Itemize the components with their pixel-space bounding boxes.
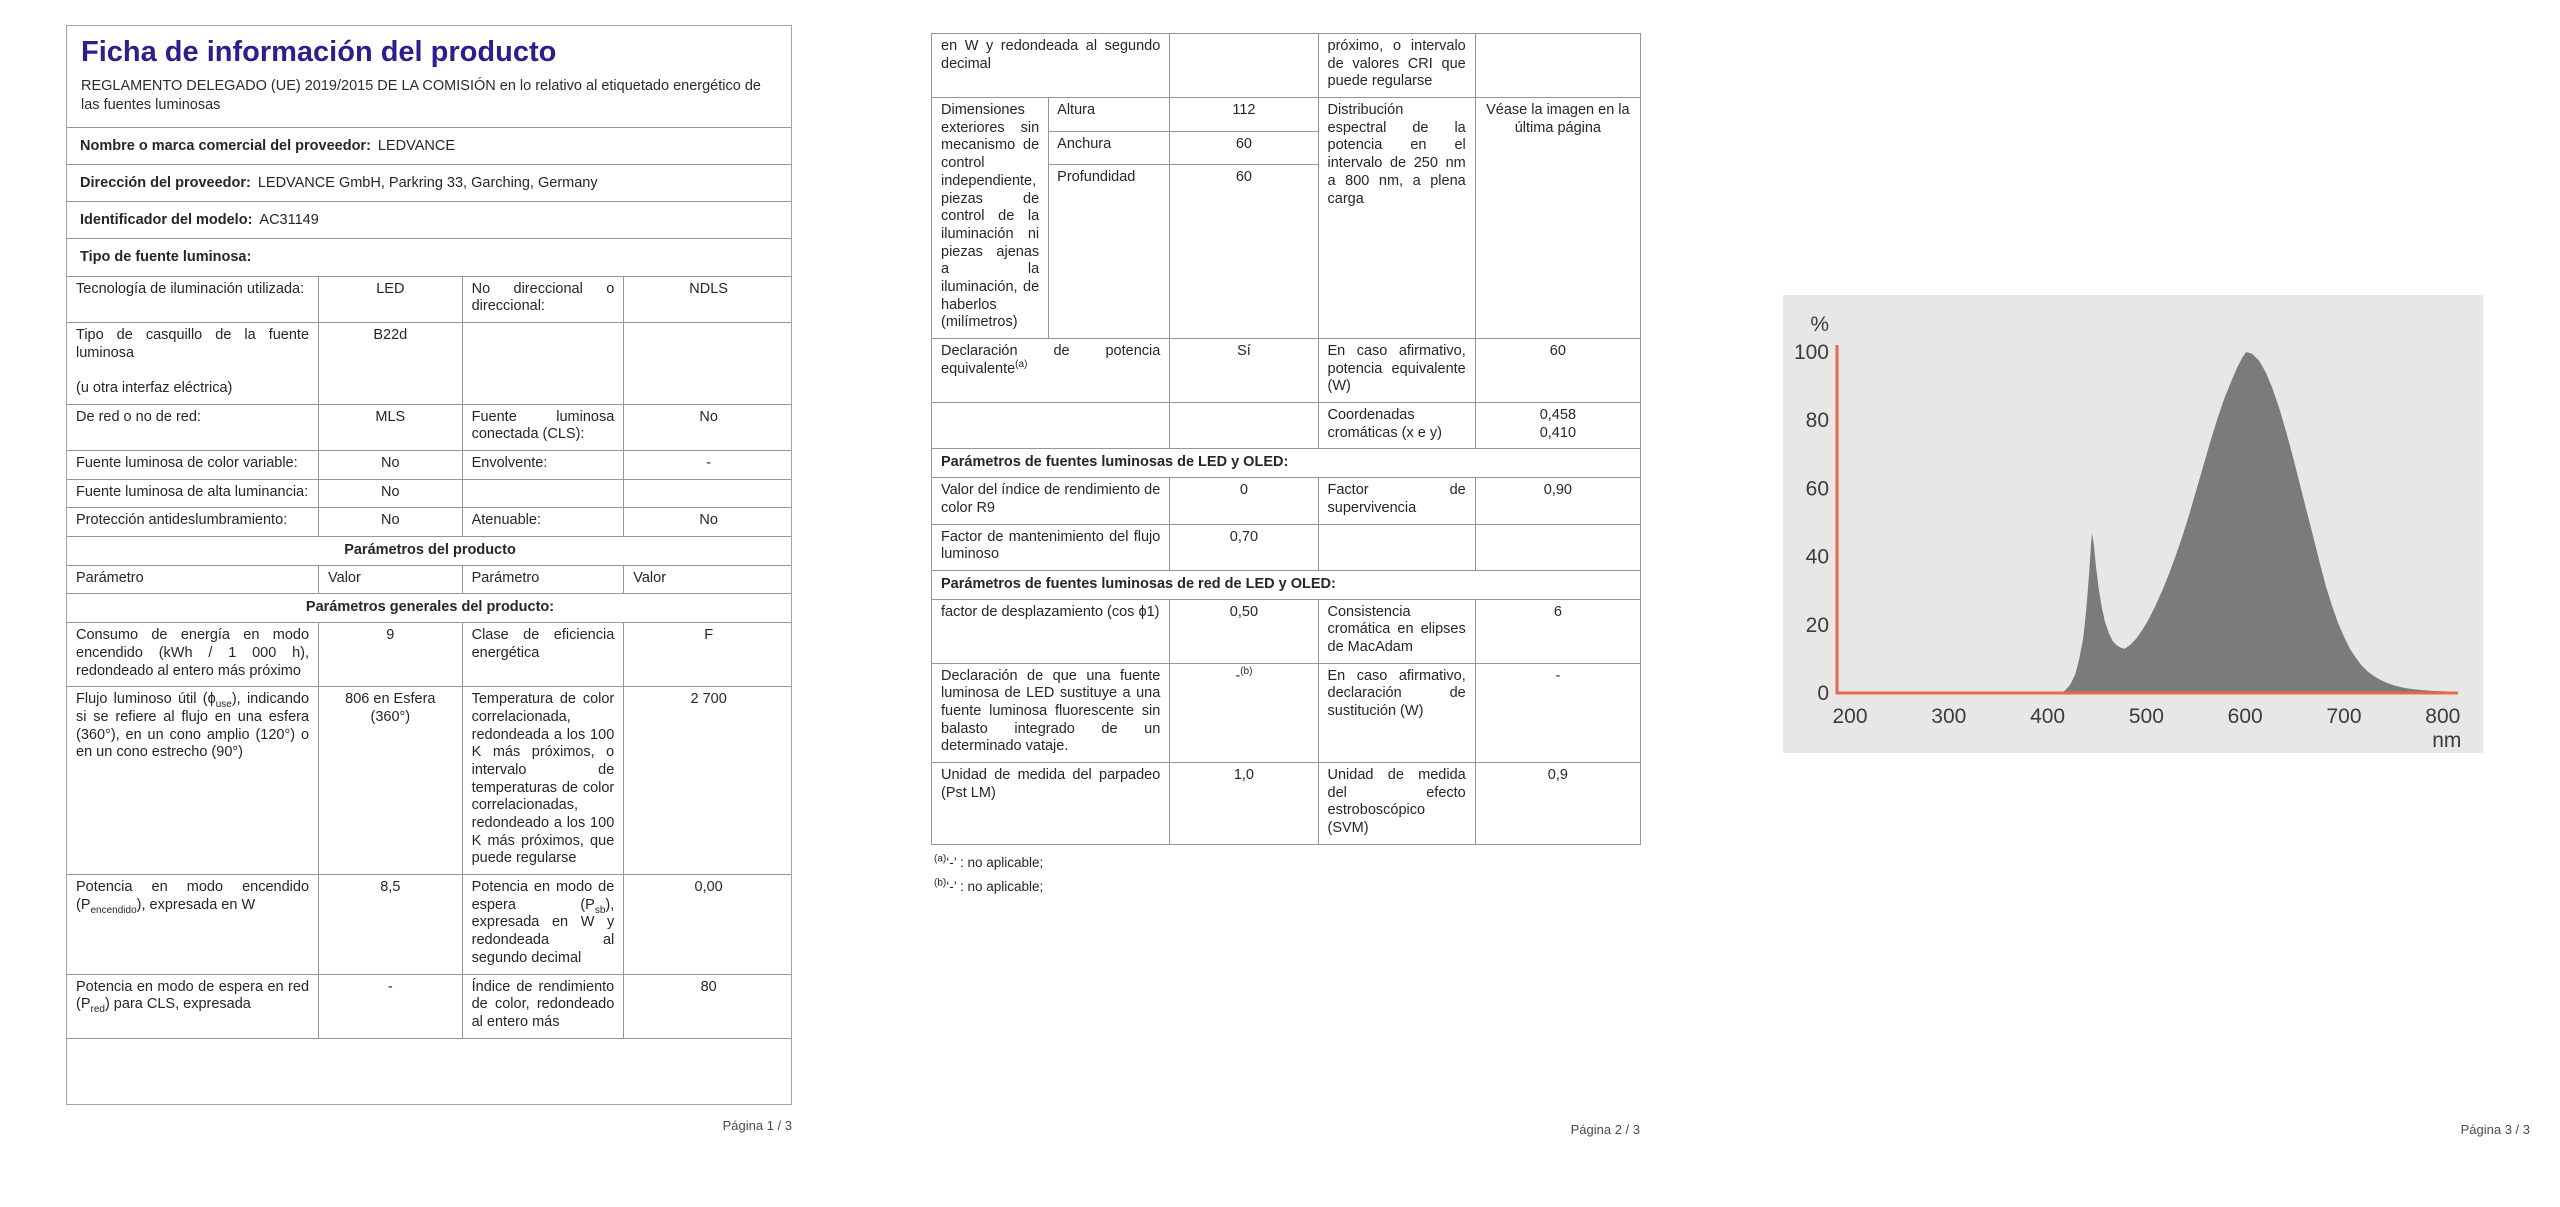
- product-parameters-table-page2: en W y redondeada al segundo decimal pró…: [931, 33, 1641, 845]
- param-cell: Índice de rendimiento de color, redondea…: [462, 974, 624, 1038]
- param-cell: Fuente luminosa de alta luminancia:: [67, 479, 319, 508]
- column-header: Valor: [319, 565, 463, 594]
- section-band: Parámetros de fuentes luminosas de red d…: [932, 570, 1641, 599]
- svg-text:200: 200: [1832, 705, 1867, 728]
- svg-text:400: 400: [2030, 705, 2065, 728]
- param-cell: Unidad de medida del parpadeo (Pst LM): [932, 763, 1170, 845]
- value-cell: [1475, 34, 1640, 98]
- param-cell: Valor del índice de rendimiento de color…: [932, 478, 1170, 524]
- info-value: LEDVANCE GmbH, Parkring 33, Garching, Ge…: [258, 175, 598, 191]
- param-cell: Factor de mantenimiento del flujo lumino…: [932, 524, 1170, 570]
- param-cell: Declaración de que una fuente luminosa d…: [932, 663, 1170, 762]
- param-cell: Unidad de medida del efecto estroboscópi…: [1318, 763, 1475, 845]
- value-cell: No: [319, 451, 463, 480]
- table-row: Factor de mantenimiento del flujo lumino…: [932, 524, 1641, 570]
- svg-text:500: 500: [2129, 705, 2164, 728]
- value-cell: -: [319, 974, 463, 1038]
- value-cell: No: [319, 508, 463, 537]
- param-cell: Consumo de energía en modo encendido (kW…: [67, 623, 319, 687]
- value-cell: 0,50: [1170, 599, 1318, 663]
- param-cell: factor de desplazamiento (cos ϕ1): [932, 599, 1170, 663]
- value-cell: NDLS: [624, 276, 792, 322]
- svg-text:nm: nm: [2432, 729, 2461, 752]
- svg-text:40: 40: [1806, 546, 1829, 569]
- dimension-label: Profundidad: [1049, 164, 1169, 197]
- section-band: Parámetros de fuentes luminosas de LED y…: [932, 449, 1641, 478]
- table-row: factor de desplazamiento (cos ϕ1) 0,50 C…: [932, 599, 1641, 663]
- value-cell: [624, 479, 792, 508]
- param-cell: En caso afirmativo, declaración de susti…: [1318, 663, 1475, 762]
- param-cell: Flujo luminoso útil (ϕuse), indicando si…: [67, 687, 319, 875]
- param-cell: [462, 322, 624, 404]
- param-cell: Potencia en modo de espera en red (Pred)…: [67, 974, 319, 1038]
- value-cell: 0,9: [1475, 763, 1640, 845]
- dimension-value: 60: [1170, 131, 1317, 164]
- param-cell: Temperatura de color correlacionada, red…: [462, 687, 624, 875]
- footnote-b: (b)‘-’ : no aplicable;: [934, 879, 1640, 896]
- table-row: Consumo de energía en modo encendido (kW…: [67, 623, 793, 687]
- footnotes: (a)‘-’ : no aplicable; (b)‘-’ : no aplic…: [932, 855, 1640, 896]
- value-cell: F: [624, 623, 792, 687]
- table-row: Tecnología de iluminación utilizada: LED…: [67, 276, 793, 322]
- value-cell: 1,0: [1170, 763, 1318, 845]
- section-band-label: Parámetros generales del producto:: [67, 594, 793, 623]
- param-cell: Declaración de potencia equivalente(a): [932, 339, 1170, 403]
- page-title: Ficha de información del producto: [81, 36, 777, 69]
- param-cell: En caso afirmativo, potencia equivalente…: [1318, 339, 1475, 403]
- value-cell: Sí: [1170, 339, 1318, 403]
- svg-text:80: 80: [1806, 409, 1829, 432]
- table-row: Flujo luminoso útil (ϕuse), indicando si…: [67, 687, 793, 875]
- value-cell: 80: [624, 974, 792, 1038]
- table-row: Tipo de casquillo de la fuente luminosa …: [67, 322, 793, 404]
- param-cell: Fuente luminosa de color variable:: [67, 451, 319, 480]
- info-label: Dirección del proveedor:: [80, 175, 251, 191]
- table-header-row: Parámetro Valor Parámetro Valor: [67, 565, 793, 594]
- value-cell: 806 en Esfera (360°): [319, 687, 463, 875]
- svg-text:%: %: [1810, 313, 1829, 336]
- param-cell: Distribución espectral de la potencia en…: [1318, 98, 1475, 339]
- table-row: Unidad de medida del parpadeo (Pst LM) 1…: [932, 763, 1641, 845]
- info-label: Identificador del modelo:: [80, 212, 252, 228]
- value-cell: [1170, 403, 1318, 449]
- chart-area: [2060, 352, 2452, 693]
- dimension-value: 60: [1170, 164, 1317, 197]
- value-cell: No: [319, 479, 463, 508]
- value-cell: -: [624, 451, 792, 480]
- param-cell: De red o no de red:: [67, 404, 319, 450]
- svg-text:100: 100: [1794, 341, 1829, 364]
- table-row: Valor del índice de rendimiento de color…: [932, 478, 1641, 524]
- value-cell: 0,458 0,410: [1475, 403, 1640, 449]
- svg-text:300: 300: [1931, 705, 1966, 728]
- value-cell: B22d: [319, 322, 463, 404]
- spectral-distribution-chart: 020406080100200300400500600700800%nm: [1783, 295, 2483, 753]
- value-cell: 0: [1170, 478, 1318, 524]
- section-band: Parámetros generales del producto:: [67, 594, 793, 623]
- svg-text:600: 600: [2228, 705, 2263, 728]
- value-cell: 6: [1475, 599, 1640, 663]
- param-cell: en W y redondeada al segundo decimal: [932, 34, 1170, 98]
- value-cell: No: [624, 508, 792, 537]
- svg-text:800: 800: [2425, 705, 2460, 728]
- table-row: Potencia en modo encendido (Pencendido),…: [67, 875, 793, 974]
- param-cell: Clase de eficiencia energética: [462, 623, 624, 687]
- info-value: AC31149: [259, 212, 318, 228]
- section-band-label: Parámetros del producto: [67, 537, 793, 566]
- param-cell: próximo, o intervalo de valores CRI que …: [1318, 34, 1475, 98]
- footnote-a: (a)‘-’ : no aplicable;: [934, 855, 1640, 872]
- table-row: Potencia en modo de espera en red (Pred)…: [67, 974, 793, 1038]
- page-number-1: Página 1 / 3: [66, 1118, 792, 1133]
- table-row: Declaración de potencia equivalente(a) S…: [932, 339, 1641, 403]
- param-cell: Fuente luminosa conectada (CLS):: [462, 404, 624, 450]
- info-label: Tipo de fuente luminosa:: [80, 249, 251, 265]
- spectral-chart-panel: 020406080100200300400500600700800%nm: [1783, 295, 2483, 753]
- param-cell: No direccional o direccional:: [462, 276, 624, 322]
- page-number-3: Página 3 / 3: [1800, 1122, 2530, 1137]
- svg-text:60: 60: [1806, 477, 1829, 500]
- info-row-supplier-address: Dirección del proveedor:LEDVANCE GmbH, P…: [67, 164, 791, 201]
- param-cell: Envolvente:: [462, 451, 624, 480]
- table-row: Fuente luminosa de color variable: No En…: [67, 451, 793, 480]
- value-cell: -: [1475, 663, 1640, 762]
- param-cell: Atenuable:: [462, 508, 624, 537]
- svg-text:20: 20: [1806, 614, 1829, 637]
- page-1: Ficha de información del producto REGLAM…: [66, 25, 792, 1105]
- param-cell: Potencia en modo encendido (Pencendido),…: [67, 875, 319, 974]
- info-row-supplier-name: Nombre o marca comercial del proveedor:L…: [67, 127, 791, 164]
- value-cell: [624, 322, 792, 404]
- param-cell: Factor de supervivencia: [1318, 478, 1475, 524]
- table-row: De red o no de red: MLS Fuente luminosa …: [67, 404, 793, 450]
- value-cell: No: [624, 404, 792, 450]
- table-row: Fuente luminosa de alta luminancia: No: [67, 479, 793, 508]
- info-value: LEDVANCE: [378, 138, 455, 154]
- info-row-model-id: Identificador del modelo:AC31149: [67, 201, 791, 238]
- param-cell: Tecnología de iluminación utilizada:: [67, 276, 319, 322]
- table-row-dimensions: Dimensiones exteriores sin mecanismo de …: [932, 98, 1641, 339]
- page-number-2: Página 2 / 3: [932, 1122, 1640, 1137]
- value-cell: LED: [319, 276, 463, 322]
- column-header: Valor: [624, 565, 792, 594]
- svg-text:0: 0: [1817, 682, 1829, 705]
- section-band: Parámetros del producto: [67, 537, 793, 566]
- value-cell: -(b): [1170, 663, 1318, 762]
- param-cell: Potencia en modo de espera (Psb), expres…: [462, 875, 624, 974]
- value-cell: Véase la imagen en la última página: [1475, 98, 1640, 339]
- dimension-values-cell: 112 60 60: [1170, 98, 1318, 339]
- param-cell: [462, 479, 624, 508]
- dimension-label: Anchura: [1049, 131, 1169, 164]
- value-cell: 0,00: [624, 875, 792, 974]
- value-cell: 8,5: [319, 875, 463, 974]
- value-cell: [1475, 524, 1640, 570]
- value-cell: 2 700: [624, 687, 792, 875]
- param-cell: Coordenadas cromáticas (x e y): [1318, 403, 1475, 449]
- product-parameters-table-page1: Tecnología de iluminación utilizada: LED…: [66, 276, 792, 1039]
- value-cell: 0,90: [1475, 478, 1640, 524]
- value-cell: MLS: [319, 404, 463, 450]
- param-cell: Protección antideslumbramiento:: [67, 508, 319, 537]
- table-row: Protección antideslumbramiento: No Atenu…: [67, 508, 793, 537]
- value-cell: 0,70: [1170, 524, 1318, 570]
- dimension-label: Altura: [1049, 98, 1169, 131]
- table-row: Declaración de que una fuente luminosa d…: [932, 663, 1641, 762]
- regulation-subtitle: REGLAMENTO DELEGADO (UE) 2019/2015 DE LA…: [81, 77, 777, 115]
- value-cell: 60: [1475, 339, 1640, 403]
- title-block: Ficha de información del producto REGLAM…: [67, 26, 791, 127]
- page-2: en W y redondeada al segundo decimal pró…: [932, 33, 1640, 903]
- value-cell: 9: [319, 623, 463, 687]
- value-cell: [1170, 34, 1318, 98]
- document-canvas: Ficha de información del producto REGLAM…: [0, 0, 2560, 1207]
- info-label: Nombre o marca comercial del proveedor:: [80, 138, 371, 154]
- column-header: Parámetro: [462, 565, 624, 594]
- param-cell: Tipo de casquillo de la fuente luminosa …: [67, 322, 319, 404]
- info-row-light-source-type: Tipo de fuente luminosa:: [67, 238, 791, 275]
- table-row: en W y redondeada al segundo decimal pró…: [932, 34, 1641, 98]
- column-header: Parámetro: [67, 565, 319, 594]
- table-row: Coordenadas cromáticas (x e y) 0,458 0,4…: [932, 403, 1641, 449]
- dimension-value: 112: [1170, 98, 1317, 131]
- param-cell: Dimensiones exteriores sin mecanismo de …: [932, 98, 1049, 339]
- param-cell: Consistencia cromática en elipses de Mac…: [1318, 599, 1475, 663]
- dimension-labels-cell: Altura Anchura Profundidad: [1049, 98, 1170, 339]
- svg-text:700: 700: [2326, 705, 2361, 728]
- section-band-label: Parámetros de fuentes luminosas de red d…: [932, 570, 1641, 599]
- param-cell: [1318, 524, 1475, 570]
- param-cell: [932, 403, 1170, 449]
- section-band-label: Parámetros de fuentes luminosas de LED y…: [932, 449, 1641, 478]
